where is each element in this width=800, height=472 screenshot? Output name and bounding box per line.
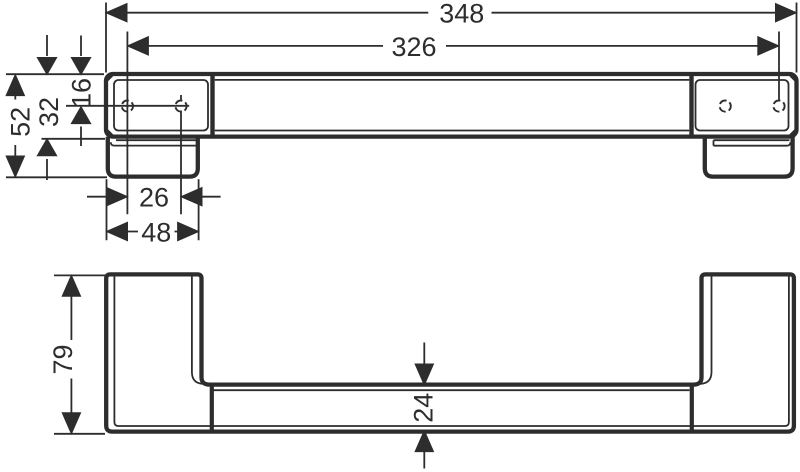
svg-text:52: 52 bbox=[5, 107, 35, 137]
svg-text:26: 26 bbox=[139, 183, 169, 213]
svg-text:326: 326 bbox=[391, 32, 436, 62]
svg-text:79: 79 bbox=[48, 344, 78, 374]
svg-text:32: 32 bbox=[34, 97, 64, 127]
svg-text:16: 16 bbox=[67, 78, 97, 108]
svg-text:24: 24 bbox=[409, 393, 439, 423]
svg-text:348: 348 bbox=[439, 0, 484, 29]
svg-text:48: 48 bbox=[141, 218, 171, 248]
